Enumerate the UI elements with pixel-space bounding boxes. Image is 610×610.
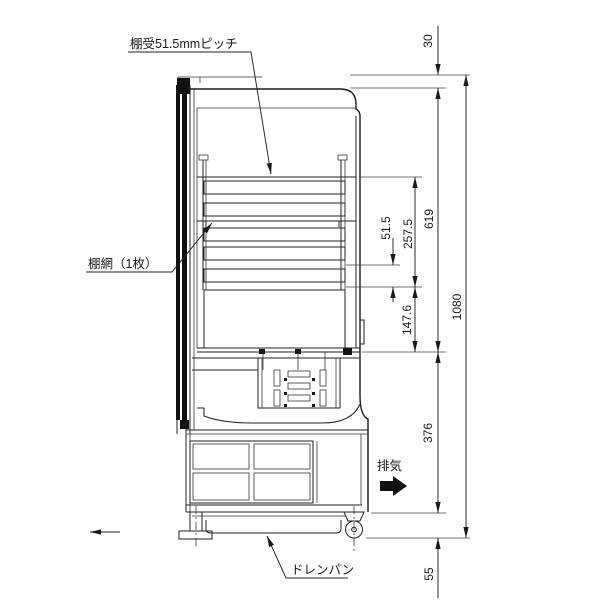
dim-1080-value: 1080 <box>450 293 464 320</box>
side-view-technical-drawing: 棚受51.5mmピッチ 棚網（1枚） 排気 ドレンパン 30 619 51.5 … <box>0 0 610 610</box>
shelf-pitch-label: 棚受51.5mmピッチ <box>130 36 238 51</box>
dim-257-5-value: 257.5 <box>401 219 415 249</box>
vent-slot <box>274 370 280 386</box>
vent-slot <box>274 390 280 406</box>
vent-slot <box>288 383 310 389</box>
vent-slot <box>320 390 326 406</box>
evaporator-unit <box>192 352 360 408</box>
machine-compartment <box>186 430 368 512</box>
condenser-panel <box>254 473 310 500</box>
drawing-sheet: 棚受51.5mmピッチ 棚網（1枚） 排気 ドレンパン 30 619 51.5 … <box>0 0 610 610</box>
leader-lines <box>86 52 407 578</box>
dim-30-value: 30 <box>421 34 435 48</box>
annotation-labels: 棚受51.5mmピッチ 棚網（1枚） 排気 ドレンパン <box>88 36 402 577</box>
exhaust-direction-arrow-icon <box>380 476 407 496</box>
drain-pan-label: ドレンパン <box>291 563 354 577</box>
caster-wheel <box>344 506 364 553</box>
condenser-panel <box>254 444 310 469</box>
vent-slot <box>288 371 310 377</box>
cabinet-body <box>190 89 368 512</box>
dim-51-5-value: 51.5 <box>379 216 393 240</box>
dim-619-value: 619 <box>422 209 436 229</box>
dim-376-value: 376 <box>421 423 435 443</box>
drain-duct-curve <box>197 404 360 423</box>
base-frame <box>186 505 362 533</box>
condenser-panel <box>193 473 249 500</box>
drain-pan-tray <box>206 520 341 533</box>
shelf-assembly <box>197 155 356 348</box>
dim-55-value: 55 <box>422 567 436 581</box>
exhaust-label: 排気 <box>377 458 402 473</box>
vent-slot <box>320 370 326 386</box>
dimension-values: 30 619 51.5 257.5 1080 147.6 376 55 <box>379 34 464 581</box>
condenser-panel <box>193 444 249 469</box>
shelf-pitch-leader <box>128 52 271 174</box>
dim-147-6-value: 147.6 <box>400 305 414 335</box>
vent-slot <box>288 395 310 401</box>
shelf-net-label: 棚網（1枚） <box>88 256 157 271</box>
glass-door <box>176 77 262 434</box>
